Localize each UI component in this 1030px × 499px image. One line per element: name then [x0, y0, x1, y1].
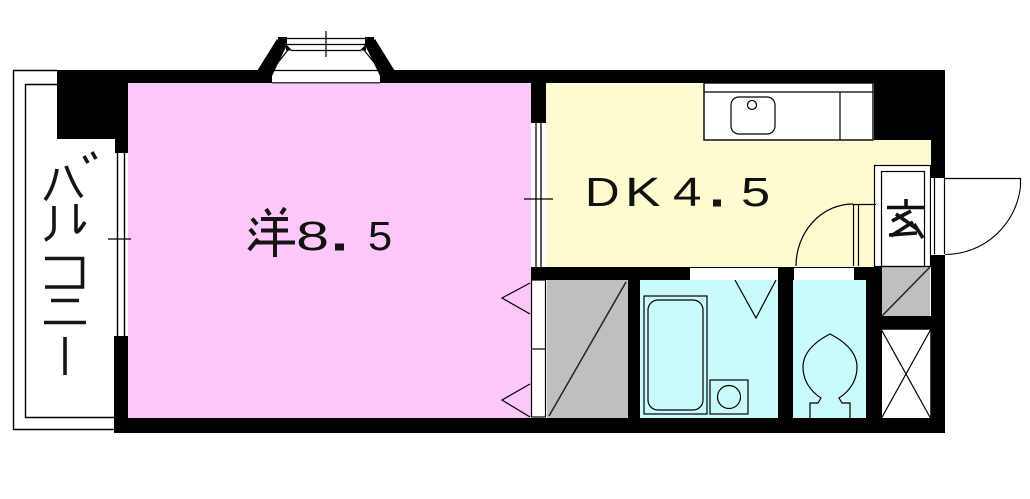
svg-text:5: 5 [741, 169, 770, 215]
svg-text:4: 4 [673, 169, 702, 215]
svg-text:K: K [625, 170, 661, 216]
svg-text:D: D [585, 170, 620, 215]
svg-text:8: 8 [296, 213, 329, 259]
svg-text:5: 5 [368, 213, 392, 259]
